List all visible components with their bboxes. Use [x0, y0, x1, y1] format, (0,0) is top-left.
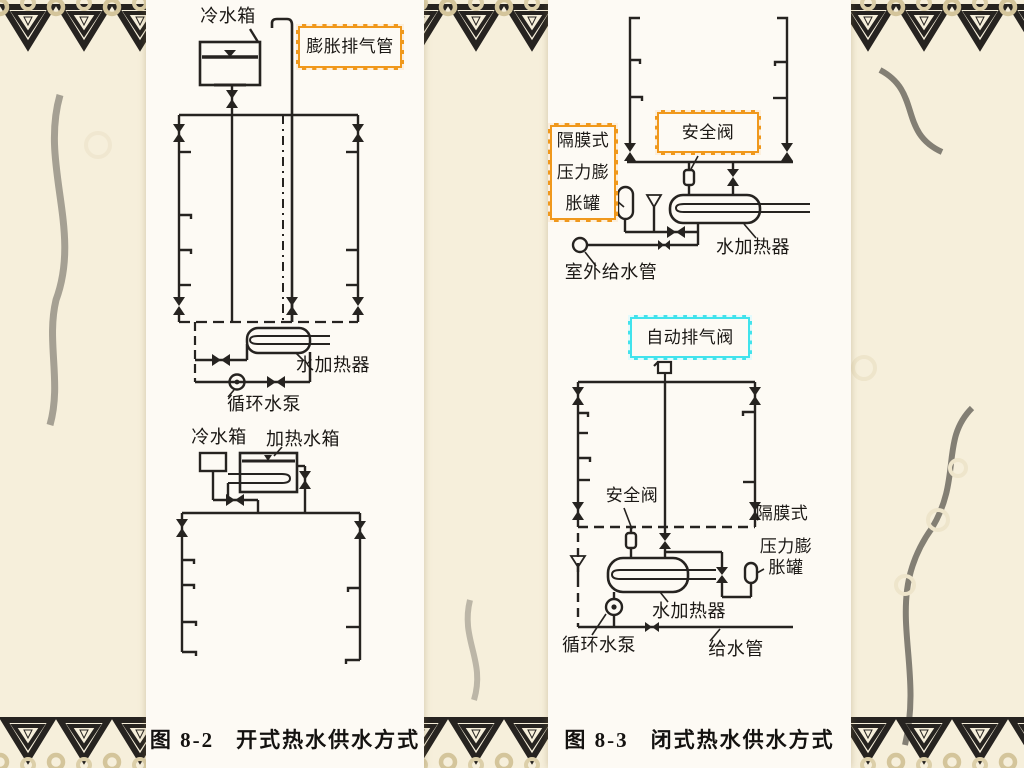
label-diaphragm-tank: 隔膜式 压力膨 胀罐	[557, 125, 610, 219]
label-diaphragm2-line2: 压力膨	[756, 537, 816, 557]
figure-8-3-number: 图 8-3	[564, 724, 628, 754]
highlight-box-safety-valve: 安全阀	[655, 110, 761, 155]
figure-8-3-panel: 隔膜式 压力膨 胀罐 安全阀 水加热器 室外给水管 自动排气阀 安全阀 隔膜式 …	[548, 0, 851, 768]
label-water-heater: 水加热器	[293, 355, 373, 376]
upper-risers	[173, 115, 364, 322]
label-water-heater-top: 水加热器	[712, 237, 794, 258]
label-diaphragm-line2: 压力膨	[557, 157, 610, 188]
auto-air-vent-symbol	[654, 362, 671, 382]
figure-8-3-title: 闭式热水供水方式	[651, 724, 835, 754]
open-system-diagram	[146, 0, 424, 768]
label-cold-tank-top: 冷水箱	[200, 6, 256, 27]
label-diaphragm2-line3: 胀罐	[764, 558, 808, 578]
label-safety-valve-lower: 安全阀	[600, 486, 664, 506]
label-diaphragm-line3: 胀罐	[557, 188, 610, 219]
highlight-box-auto-air-vent: 自动排气阀	[628, 315, 752, 360]
label-diaphragm2-line1: 隔膜式	[753, 504, 811, 524]
cold-water-tank-top	[200, 29, 260, 85]
lower-risers	[176, 513, 366, 664]
label-outdoor-supply-pipe: 室外给水管	[558, 262, 664, 283]
label-auto-air-vent: 自动排气阀	[646, 322, 734, 353]
figure-8-2-title: 开式热水供水方式	[236, 724, 420, 754]
highlight-box-diaphragm-tank: 隔膜式 压力膨 胀罐	[548, 123, 618, 222]
figure-8-2-panel: 冷水箱 膨胀排气管 水加热器 循环水泵 冷水箱 加热水箱 图 8-2 开式热水供…	[146, 0, 424, 768]
figure-8-3-caption: 图 8-3 闭式热水供水方式	[548, 724, 851, 754]
label-circulation-pump: 循环水泵	[222, 394, 306, 415]
label-safety-valve-top: 安全阀	[682, 117, 735, 148]
lower-tanks	[200, 447, 311, 513]
label-heating-tank: 加热水箱	[263, 429, 343, 450]
label-diaphragm-line1: 隔膜式	[557, 125, 610, 156]
label-supply-pipe: 给水管	[702, 639, 770, 660]
highlight-box-expansion-vent: 膨胀排气管	[296, 24, 404, 70]
figure-8-2-number: 图 8-2	[150, 724, 214, 754]
expansion-vent-pipe-line	[272, 19, 292, 322]
label-expansion-vent-pipe: 膨胀排气管	[306, 31, 394, 62]
tank-outlet	[226, 85, 238, 115]
figure-8-2-caption: 图 8-2 开式热水供水方式	[146, 724, 424, 754]
presentation-slide: 冷水箱 膨胀排气管 水加热器 循环水泵 冷水箱 加热水箱 图 8-2 开式热水供…	[0, 0, 1024, 768]
label-circulation-pump: 循环水泵	[556, 635, 642, 656]
label-water-heater-lower: 水加热器	[648, 601, 730, 622]
label-cold-tank-lower: 冷水箱	[188, 427, 250, 448]
